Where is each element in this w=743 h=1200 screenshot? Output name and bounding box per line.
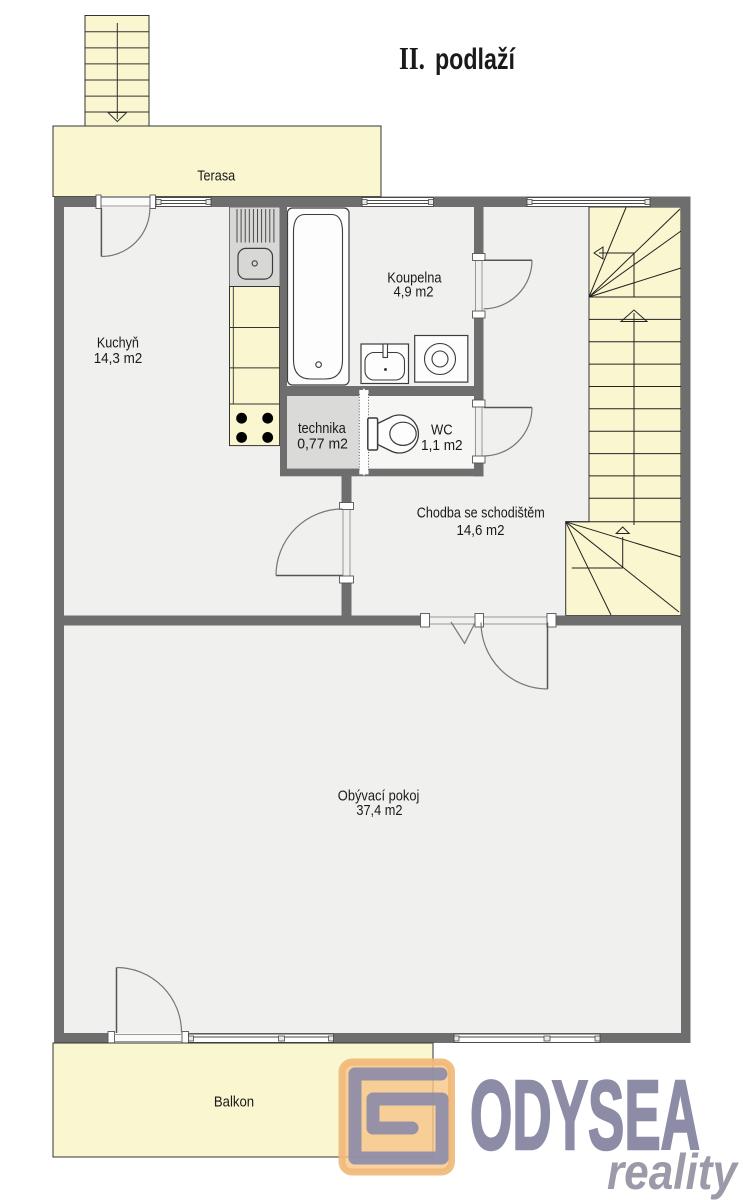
svg-text:14,3 m2: 14,3 m2: [94, 350, 143, 367]
svg-text:Balkon: Balkon: [214, 1094, 254, 1111]
svg-text:4,9 m2: 4,9 m2: [394, 284, 434, 301]
svg-text:technika: technika: [298, 420, 346, 437]
svg-text:II.: II.: [399, 40, 425, 76]
svg-text:1,1 m2: 1,1 m2: [421, 437, 463, 454]
svg-text:Terasa: Terasa: [197, 168, 236, 185]
svg-text:14,6 m2: 14,6 m2: [457, 522, 505, 539]
svg-text:WC: WC: [431, 422, 453, 439]
svg-text:Kuchyň: Kuchyň: [97, 334, 139, 351]
svg-text:0,77 m2: 0,77 m2: [297, 436, 348, 453]
svg-text:37,4 m2: 37,4 m2: [356, 802, 402, 819]
svg-text:podlaží: podlaží: [435, 43, 516, 76]
svg-text:Chodba se schodištěm: Chodba se schodištěm: [417, 505, 545, 522]
svg-text:reality: reality: [607, 1144, 739, 1200]
